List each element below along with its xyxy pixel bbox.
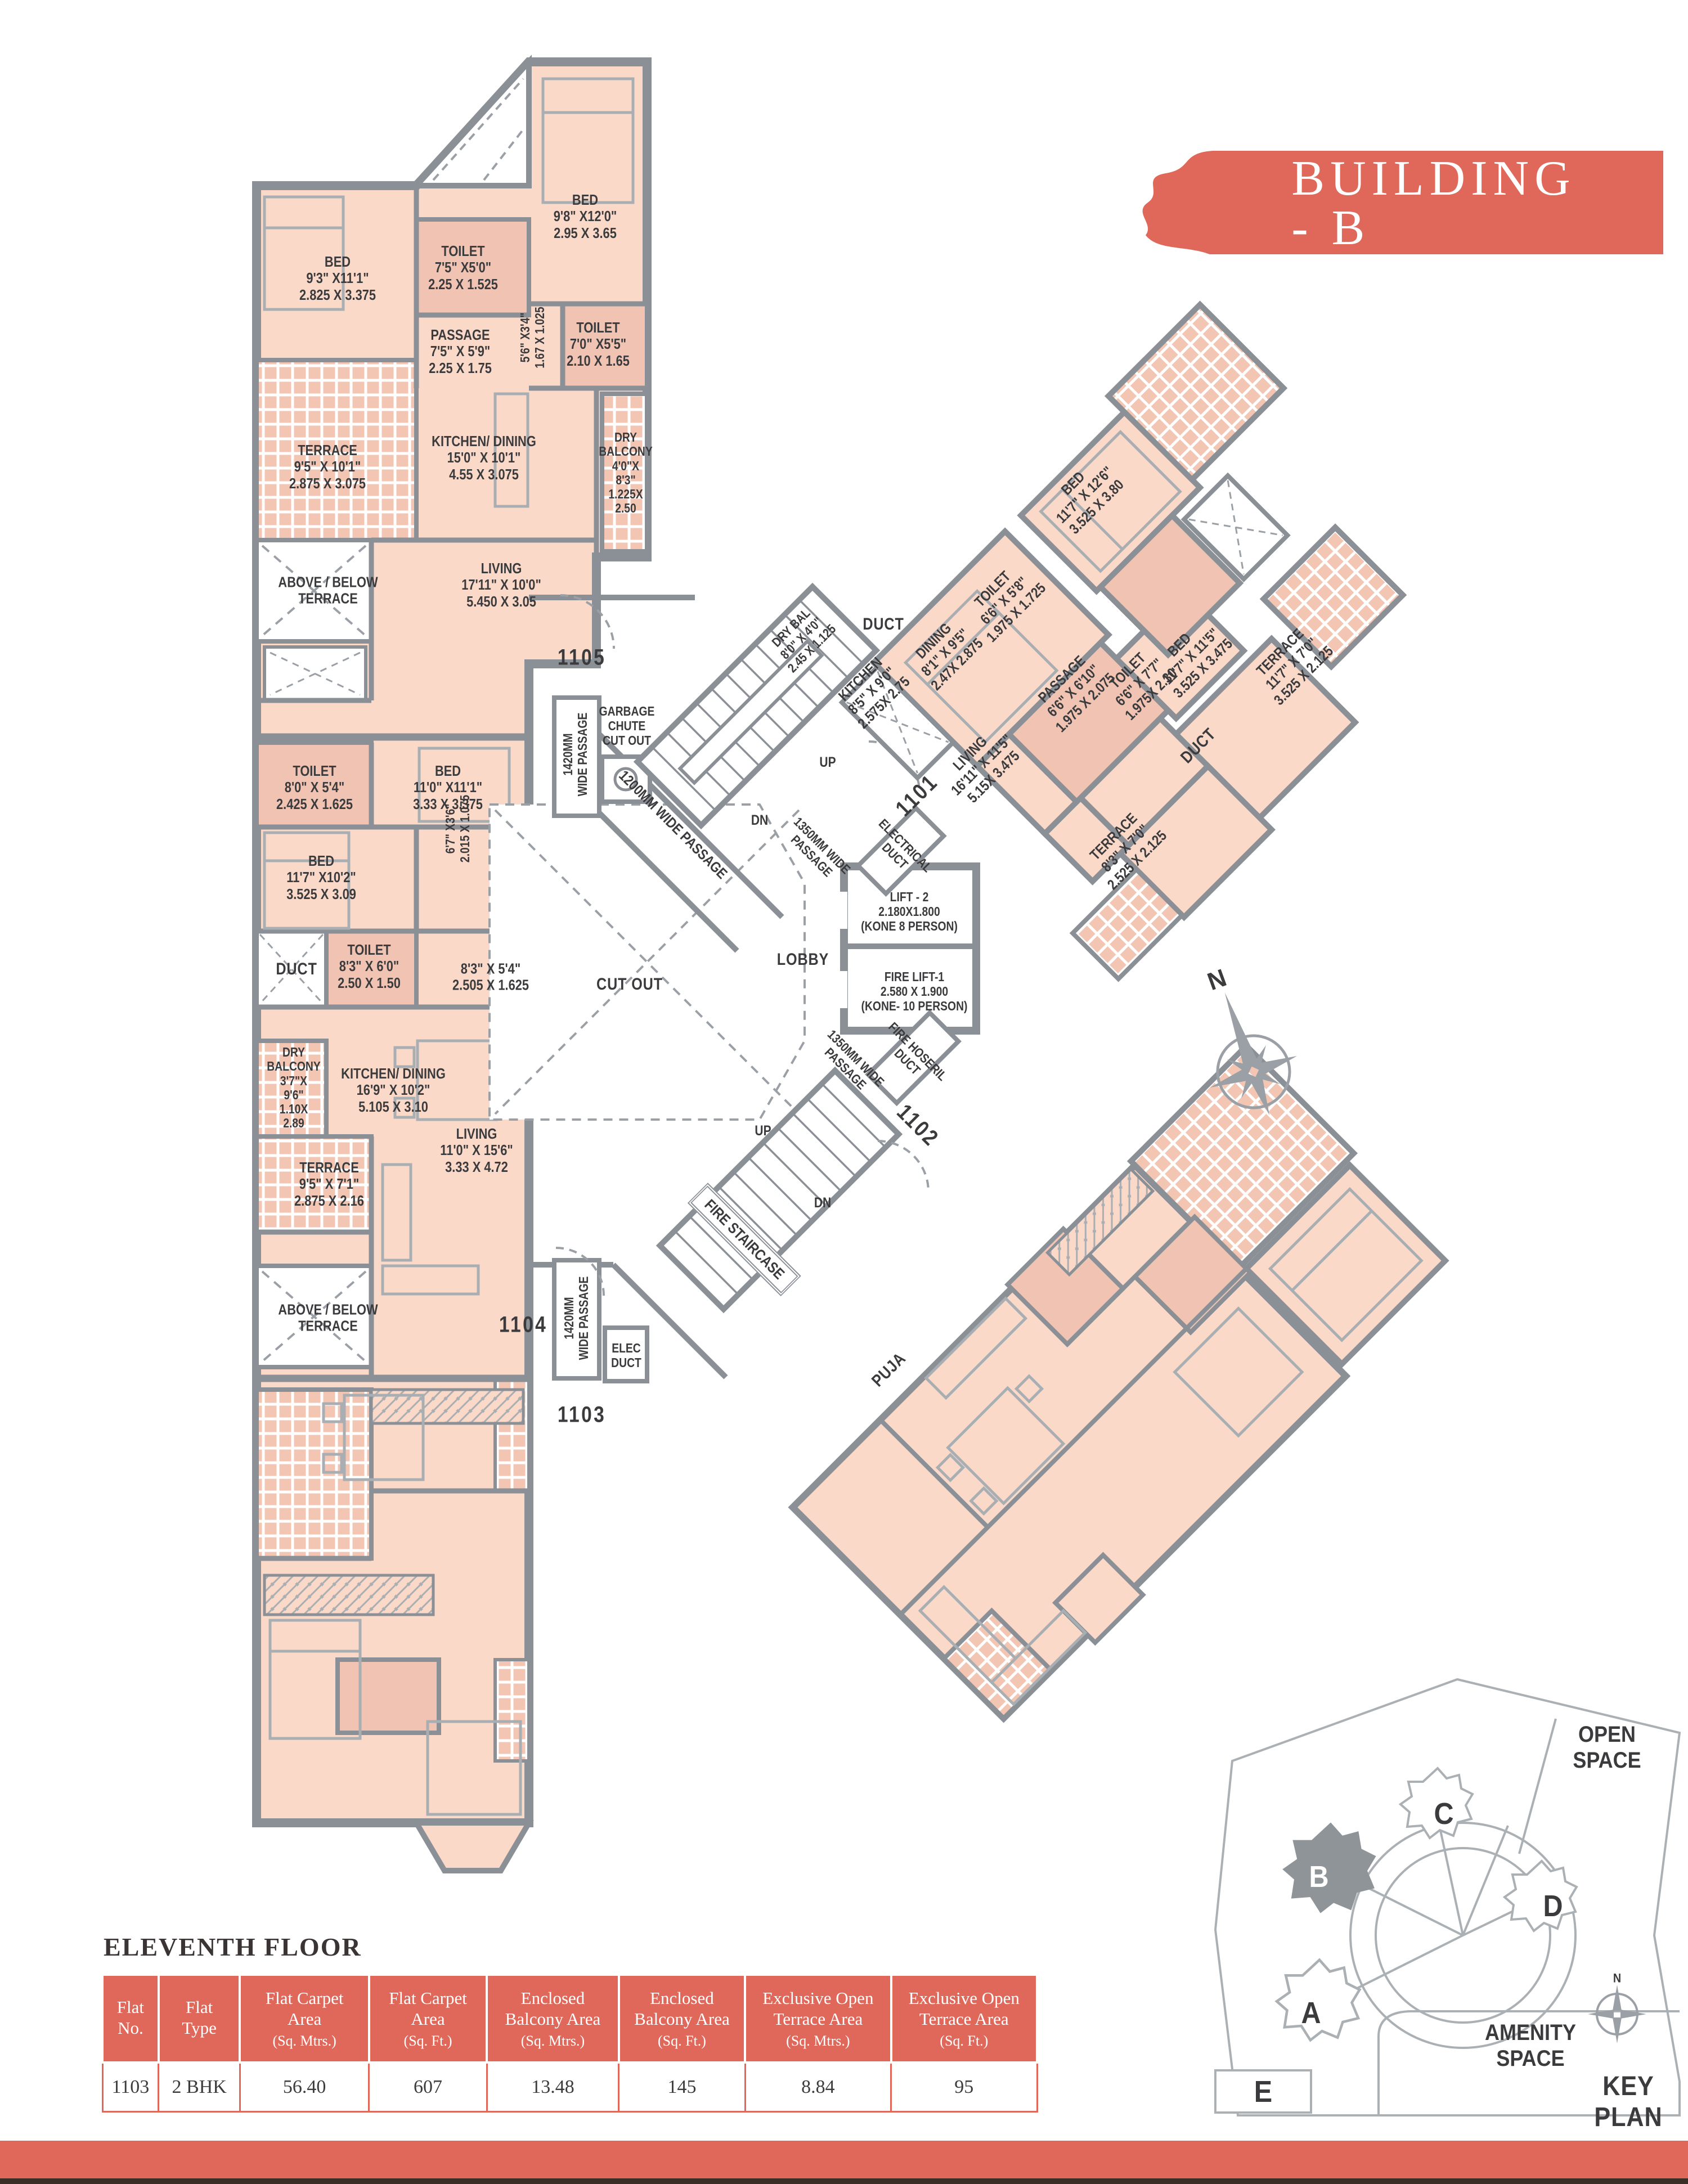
label-dn-1: DN	[751, 812, 768, 828]
label-passage-1420a: 1420MMWIDE PASSAGE	[560, 713, 590, 797]
room-label-living-1105: LIVING17'11" X 10'0"5.450 X 3.05	[461, 560, 541, 610]
label-dn-2: DN	[814, 1195, 831, 1211]
room-label-toilet-1104a: TOILET8'0" X 5'4"2.425 X 1.625	[276, 763, 353, 812]
col-carpet-ft: Flat Carpet Area(Sq. Ft.)	[369, 1975, 487, 2062]
room-label-passage-8-3: 8'3" X 5'4"2.505 X 1.625	[452, 961, 529, 994]
key-plan-title: KEY PLAN	[1594, 2071, 1662, 2133]
label-above-below-terrace-2: ABOVE / BELOWTERRACE	[278, 1302, 378, 1335]
cell-flat-type: 2 BHK	[159, 2062, 240, 2112]
label-duct-1104: DUCT	[276, 960, 317, 979]
flat-number-1103: 1103	[558, 1402, 606, 1427]
label-duct-1101-entry: DUCT	[863, 615, 904, 634]
room-label-terrace-1104: TERRACE9'5" X 7'1"2.875 X 2.16	[294, 1160, 364, 1209]
label-fire-lift-1: FIRE LIFT-12.580 X 1.900(KONE- 10 PERSON…	[861, 969, 968, 1013]
room-label-passage-1105: PASSAGE7'5" X 5'9"2.25 X 1.75	[429, 327, 492, 376]
label-above-below-terrace-1: ABOVE / BELOWTERRACE	[278, 574, 378, 608]
room-label-drybal-1104: DRYBALCONY3'7"X9'6"1.10X2.89	[267, 1045, 321, 1131]
flat-number-1104: 1104	[499, 1312, 547, 1337]
label-up-1: UP	[819, 754, 836, 770]
cell-flat-no: 1103	[102, 2062, 159, 2112]
room-label-passage-6-7: 6'7" X3'6"2.015 X 1.075	[443, 795, 472, 862]
room-label-passage-5-6: 5'6" X3'4"1.67 X 1.025	[518, 307, 547, 369]
col-balcony-ft: Enclosed Balcony Area(Sq. Ft.)	[619, 1975, 746, 2062]
room-label-toilet-1104b: TOILET8'3" X 6'0"2.50 X 1.50	[338, 942, 401, 991]
room-label-bed-1105a: BED9'3" X11'1"2.825 X 3.375	[299, 254, 376, 303]
room-label-living-1104: LIVING11'0" X 15'6"3.33 X 4.72	[440, 1126, 513, 1175]
flat-1102	[789, 1046, 1469, 1726]
label-passage-1420b: 1420MMWIDE PASSAGE	[562, 1277, 591, 1360]
table-header-row: Flat No. Flat Type Flat Carpet Area(Sq. …	[102, 1975, 1037, 2062]
label-lobby: LOBBY	[777, 950, 829, 969]
room-label-bed-1104b: BED11'7" X10'2"3.525 X 3.09	[286, 853, 356, 902]
cell-carpet-ft: 607	[369, 2062, 487, 2112]
key-plan-building-b: B	[1309, 1859, 1328, 1894]
label-elec-duct: ELECDUCT	[611, 1341, 641, 1370]
footer-strip	[0, 2178, 1688, 2184]
floor-title: ELEVENTH FLOOR	[104, 1934, 362, 1960]
terrace-1103-area	[257, 1390, 371, 1558]
col-carpet-mtrs: Flat Carpet Area(Sq. Mtrs.)	[240, 1975, 369, 2062]
label-cut-out: CUT OUT	[596, 975, 663, 994]
page-title: BUILDING - B	[1291, 154, 1575, 253]
key-plan-building-d: D	[1543, 1889, 1563, 1924]
room-label-toilet-1105b: TOILET7'0" X5'5"2.10 X 1.65	[567, 320, 630, 369]
room-label-toilet-1105a: TOILET7'5" X5'0"2.25 X 1.525	[428, 243, 498, 293]
floor-plan-drawing	[0, 0, 1688, 2184]
room-label-kitchen-1105: KITCHEN/ DINING15'0" X 10'1"4.55 X 3.075	[432, 433, 536, 483]
area-statement-table: Flat No. Flat Type Flat Carpet Area(Sq. …	[101, 1974, 1038, 2113]
key-plan-open-space: OPEN SPACE	[1573, 1722, 1641, 1773]
col-flat-no: Flat No.	[102, 1975, 159, 2062]
room-label-terrace-1105: TERRACE9'5" X 10'1"2.875 X 3.075	[289, 442, 366, 492]
cell-balcony-ft: 145	[619, 2062, 746, 2112]
cell-balcony-mtrs: 13.48	[487, 2062, 618, 2112]
table-data-row: 1103 2 BHK 56.40 607 13.48 145 8.84 95	[102, 2062, 1037, 2112]
room-label-kitchen-1104: KITCHEN/ DINING16'9" X 10'2"5.105 X 3.10	[341, 1066, 446, 1115]
col-flat-type: Flat Type	[159, 1975, 240, 2062]
cell-terrace-ft: 95	[891, 2062, 1037, 2112]
key-plan-amenity-space: AMENITY SPACE	[1460, 2020, 1601, 2071]
label-up-2: UP	[755, 1123, 771, 1139]
floor-plan-page: BUILDING - B BED9'3" X11'1"2.825 X 3.375…	[0, 0, 1688, 2184]
label-garbage-chute: GARBAGECHUTECUT OUT	[599, 704, 655, 748]
col-balcony-mtrs: Enclosed Balcony Area(Sq. Mtrs.)	[487, 1975, 618, 2062]
room-label-drybal-1105: DRYBALCONY4'0"X8'3"1.225X2.50	[599, 430, 653, 516]
label-lift-2: LIFT - 22.180X1.800(KONE 8 PERSON)	[861, 889, 958, 933]
key-plan-building-a: A	[1301, 1996, 1321, 2030]
cell-terrace-mtrs: 8.84	[745, 2062, 891, 2112]
room-label-bed-1105b: BED9'8" X12'0"2.95 X 3.65	[554, 192, 617, 241]
key-plan-north-label: N	[1613, 1971, 1621, 1985]
col-terrace-mtrs: Exclusive Open Terrace Area(Sq. Mtrs.)	[745, 1975, 891, 2062]
col-terrace-ft: Exclusive Open Terrace Area(Sq. Ft.)	[891, 1975, 1037, 2062]
flat-number-1105: 1105	[558, 645, 606, 670]
key-plan-building-c: C	[1434, 1796, 1453, 1831]
cell-carpet-mtrs: 56.40	[240, 2062, 369, 2112]
footer-bar	[0, 2141, 1688, 2178]
key-plan-building-e: E	[1254, 2074, 1272, 2109]
